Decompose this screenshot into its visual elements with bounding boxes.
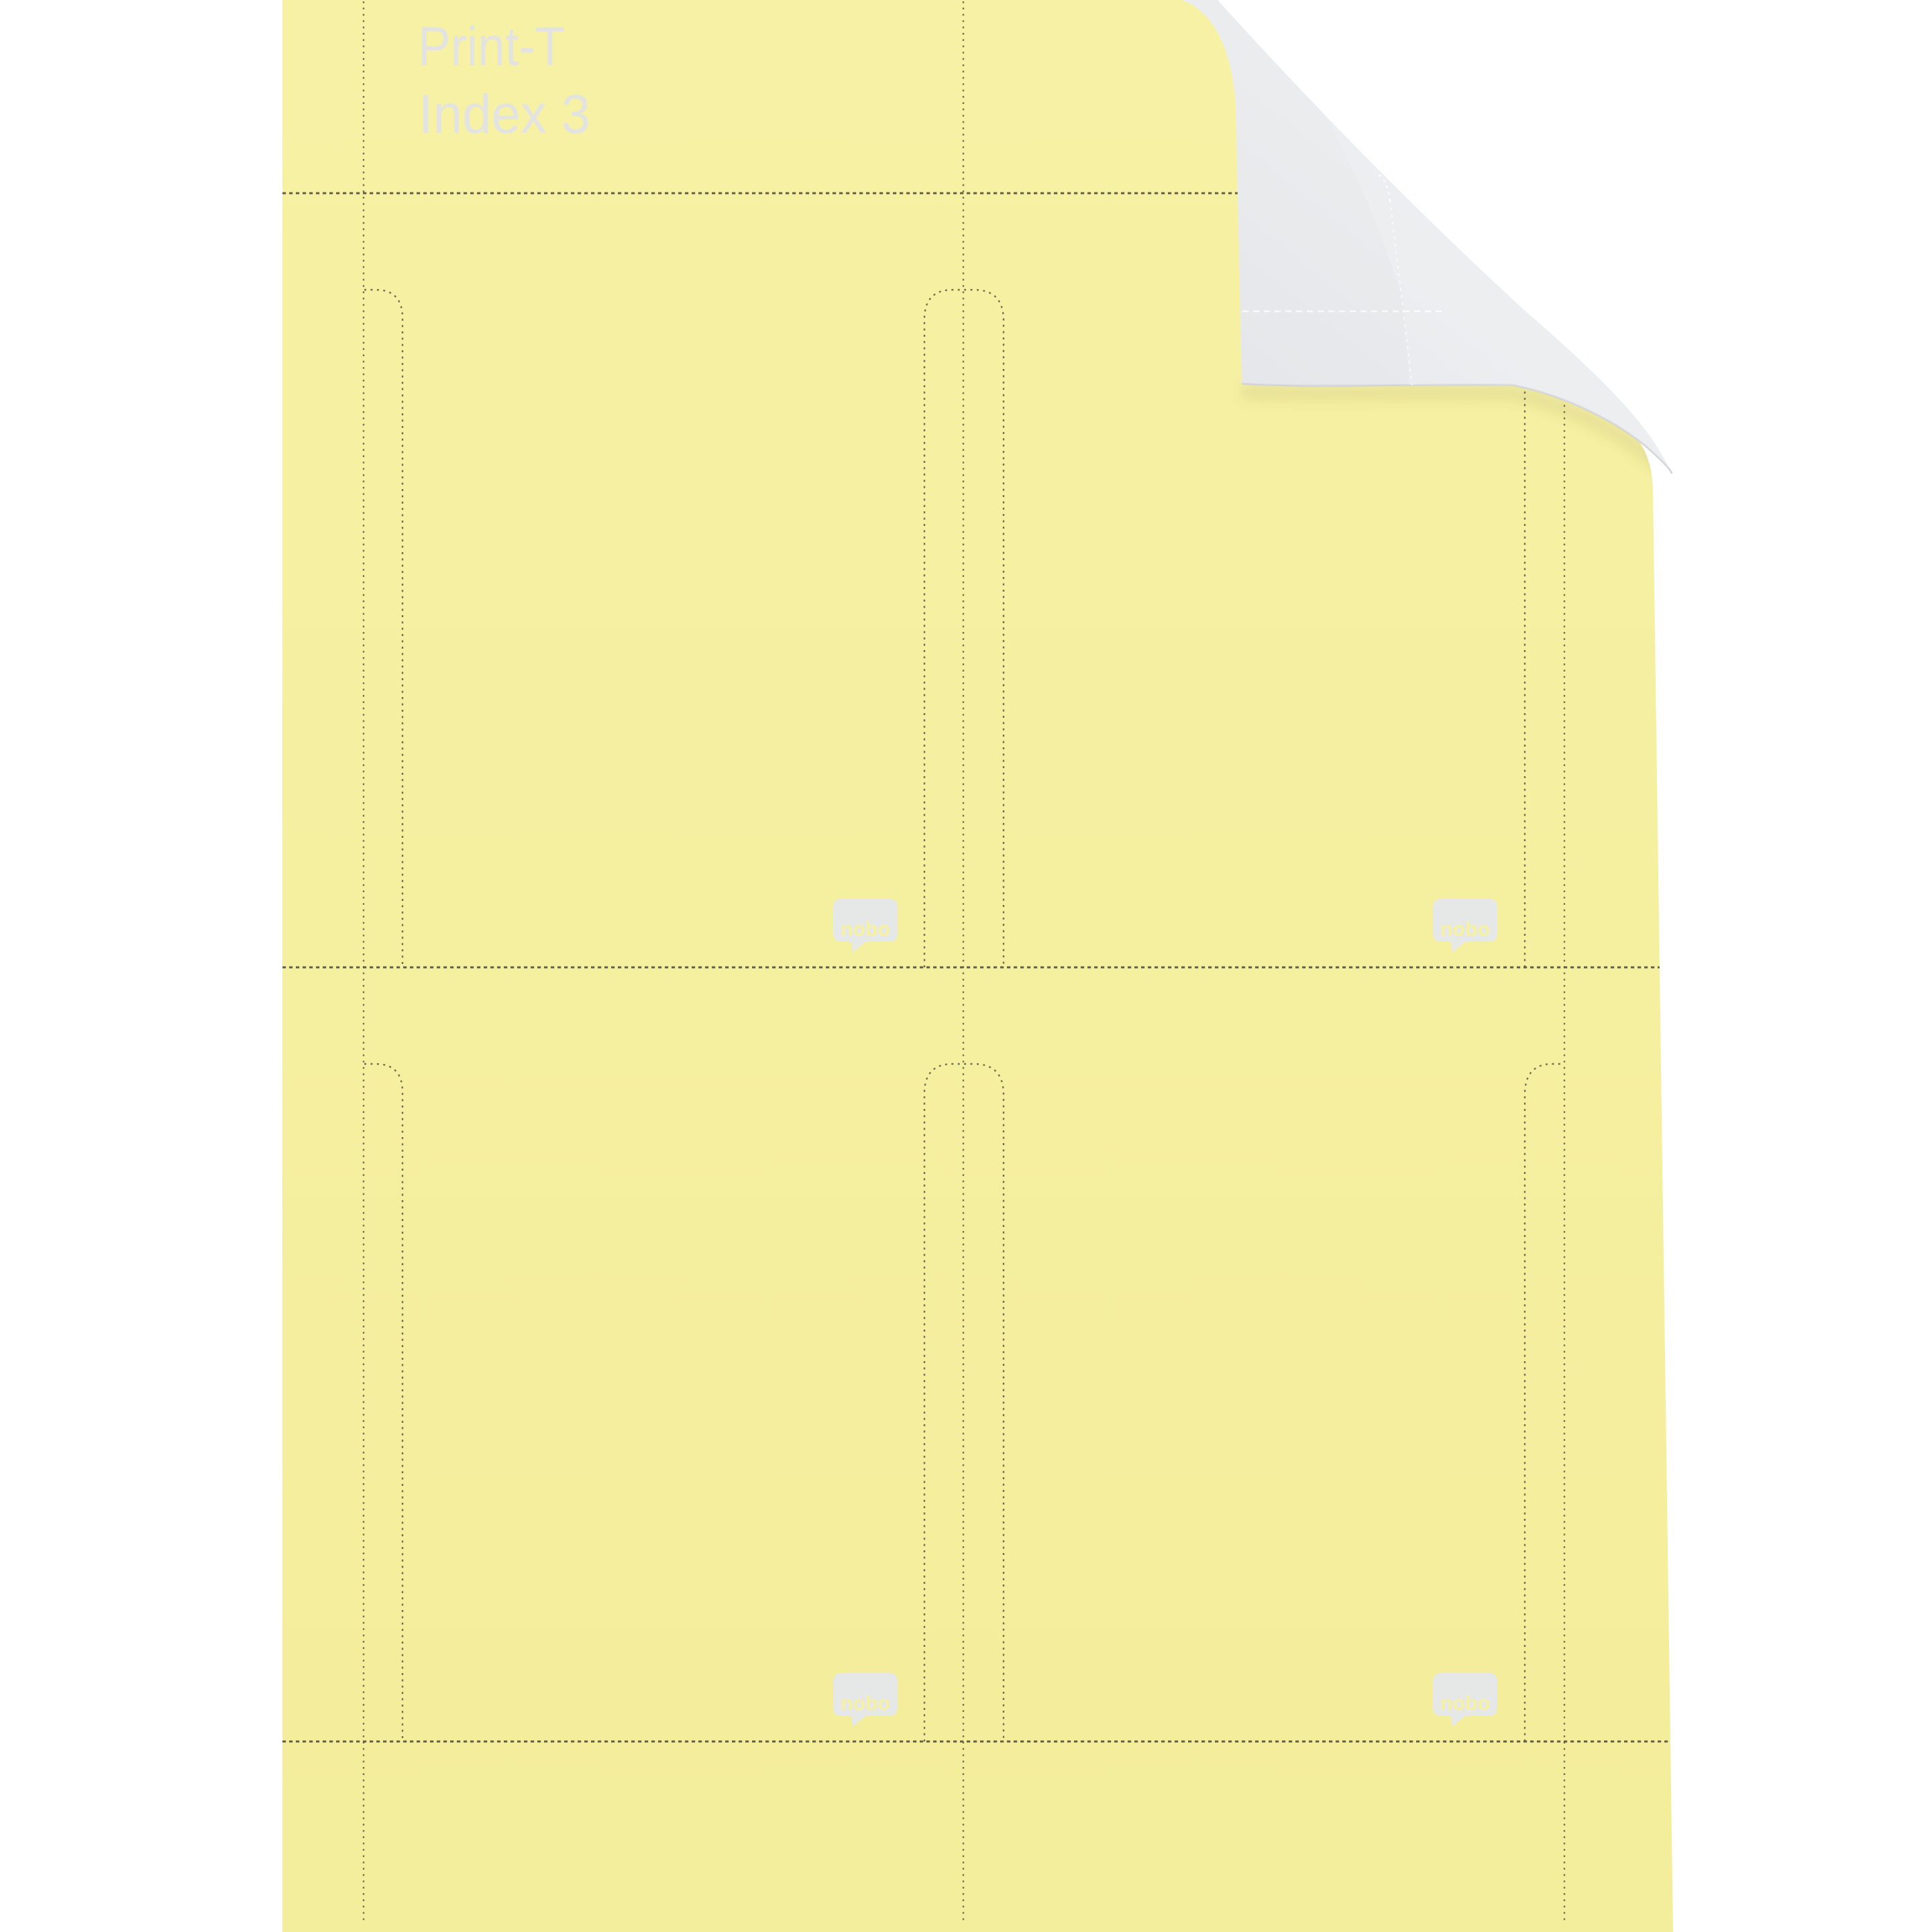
svg-text:Print-T: Print-T — [418, 16, 565, 77]
svg-text:nobo: nobo — [1440, 1691, 1490, 1715]
svg-text:nobo: nobo — [1440, 917, 1490, 941]
svg-text:nobo: nobo — [841, 917, 890, 941]
svg-text:Index 3: Index 3 — [419, 84, 590, 145]
svg-text:nobo: nobo — [841, 1691, 890, 1715]
